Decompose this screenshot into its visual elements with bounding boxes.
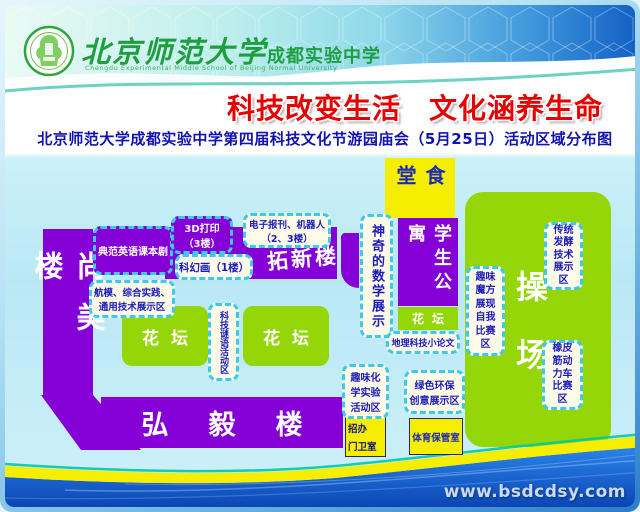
canteen-label: 食堂 bbox=[391, 158, 449, 218]
activity-line: 比赛 bbox=[553, 381, 573, 394]
title-right: 文化涵养生命 bbox=[429, 87, 603, 127]
activity-line: 传统 bbox=[554, 225, 574, 238]
activity-math-magic: 神奇的数学展示 bbox=[360, 214, 393, 338]
admissions-line1: 招办 bbox=[348, 421, 367, 435]
flowerbed-small-label: 花坛 bbox=[404, 310, 452, 327]
school-name-english: Chengdu Experimental Middle School of Be… bbox=[85, 64, 338, 72]
flowerbed-center: 花坛 bbox=[243, 306, 329, 366]
flowerbed-center-label: 花坛 bbox=[251, 324, 321, 349]
building-student-dorm: 学生公寓 bbox=[398, 218, 458, 306]
activity-epaper-robot: 电子报刊、机器人 （2、3楼） bbox=[243, 213, 331, 248]
activity-line: 筋动 bbox=[553, 356, 573, 369]
activity-line: 区 bbox=[481, 338, 491, 352]
activity-line: 橡皮 bbox=[553, 343, 573, 356]
activity-line: 展示 bbox=[554, 262, 574, 275]
activity-eco-creative: 绿色环保 创意展示区 bbox=[404, 370, 465, 414]
poster-card: 北京师范大学成都实验中学 Chengdu Experimental Middle… bbox=[5, 5, 635, 507]
activity-line: 展现 bbox=[476, 298, 496, 312]
school-logo-icon bbox=[23, 25, 75, 77]
activity-line: 活动区 bbox=[351, 399, 381, 414]
activity-geography-essay-label: 地理科技小论文 bbox=[391, 336, 454, 349]
activity-line: 通用技术展示区 bbox=[99, 299, 166, 313]
activity-aeromodel: 航模、综合实践、 通用技术展示区 bbox=[89, 280, 175, 318]
activity-fermentation: 传统 发酵 技术 展示 区 bbox=[544, 222, 583, 290]
activity-line: 区 bbox=[558, 394, 568, 407]
activity-3d-printing: 3D打印 （3楼） bbox=[171, 216, 233, 254]
watermark: www.bsdcdsy.com bbox=[444, 482, 626, 502]
activity-rubber-band-car: 橡皮 筋动 力车 比赛 区 bbox=[542, 340, 583, 410]
canteen: 食堂 bbox=[385, 158, 455, 218]
activity-line: 力车 bbox=[553, 369, 573, 382]
activity-geography-essay: 地理科技小论文 bbox=[386, 331, 460, 354]
activity-line: 发酵 bbox=[554, 237, 574, 250]
activity-line: （2、3楼） bbox=[261, 231, 312, 245]
activity-line: 区 bbox=[559, 275, 569, 288]
poster-title: 科技改变生活 文化涵养生命 bbox=[205, 87, 625, 127]
activity-line: 学实验 bbox=[351, 384, 381, 399]
activity-line: 航模、综合实践、 bbox=[94, 285, 170, 299]
activity-line: 魔方 bbox=[476, 284, 496, 298]
activity-chemistry: 趣味化 学实验 活动区 bbox=[342, 364, 389, 419]
activity-line: 技术 bbox=[554, 250, 574, 263]
admissions-line2: 门卫室 bbox=[348, 439, 377, 453]
activity-line: 趣味 bbox=[476, 271, 496, 285]
flowerbed-small: 花坛 bbox=[398, 307, 458, 330]
activity-line: 创意展示区 bbox=[410, 392, 460, 407]
activity-line: 绿色环保 bbox=[415, 377, 455, 392]
activity-scifi-painting: 科幻画（1楼） bbox=[175, 254, 253, 280]
activity-line: （3楼） bbox=[184, 235, 221, 250]
activity-line: 比赛 bbox=[476, 325, 496, 339]
admissions-gate-room: 招办 门卫室 bbox=[345, 417, 386, 457]
activity-line: 趣味化 bbox=[351, 369, 381, 384]
activity-riddle: 科技谜语活动区 bbox=[208, 303, 239, 381]
sports-storage-label: 体育保管室 bbox=[412, 430, 460, 444]
flowerbed-left-label: 花坛 bbox=[130, 324, 200, 349]
sports-storage-room: 体育保管室 bbox=[409, 418, 463, 455]
activity-rubiks-cube: 趣味 魔方 展现 自我 比赛 区 bbox=[466, 266, 505, 356]
title-left: 科技改变生活 bbox=[227, 87, 401, 127]
building-tuoxinlou-wing bbox=[341, 233, 359, 288]
school-logo bbox=[23, 25, 75, 77]
activity-scifi-painting-label: 科幻画（1楼） bbox=[179, 260, 249, 275]
activity-line: 电子报刊、机器人 bbox=[249, 217, 325, 231]
activity-line: 3D打印 bbox=[184, 220, 219, 235]
activity-english-drama-label: 典范英语课本剧 bbox=[98, 243, 168, 258]
activity-line: 自我 bbox=[476, 311, 496, 325]
poster-subtitle: 北京师范大学成都实验中学第四届科技文化节游园庙会（5月25日）活动区域分布图 bbox=[5, 128, 635, 149]
activity-riddle-label: 科技谜语活动区 bbox=[217, 311, 230, 374]
activity-english-drama: 典范英语课本剧 bbox=[93, 226, 173, 275]
poster-frame: 北京师范大学成都实验中学 Chengdu Experimental Middle… bbox=[0, 0, 640, 512]
building-student-dorm-label: 学生公寓 bbox=[402, 218, 454, 306]
activity-math-magic-label: 神奇的数学展示 bbox=[367, 224, 386, 329]
building-shangmeilou: 尚美楼 bbox=[43, 229, 93, 397]
